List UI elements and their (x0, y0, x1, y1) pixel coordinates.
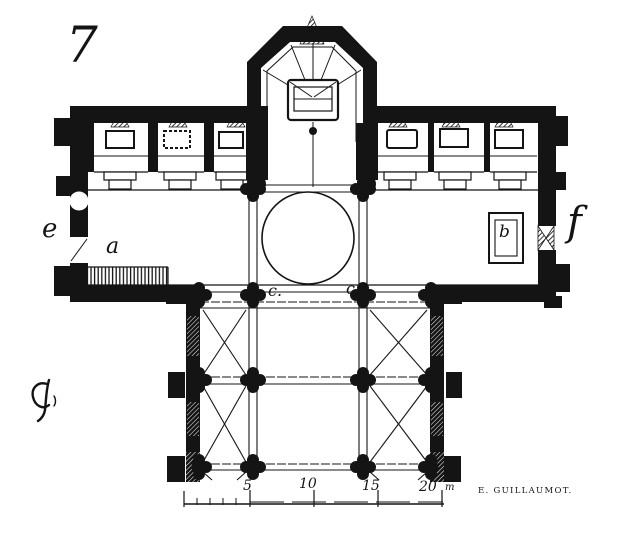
stairs-a (88, 267, 168, 285)
crossing (200, 185, 430, 292)
quatrefoil-piers (192, 176, 439, 480)
chapel-window (164, 131, 190, 148)
scale-tick-15: 15 (362, 479, 380, 493)
east-end-wall (538, 106, 570, 308)
hall-south-walls (70, 285, 554, 302)
aisle-vault-ribs (203, 310, 427, 480)
label-west-feature: e (42, 216, 57, 242)
chapel-window (495, 130, 523, 148)
engraving-church-floor-plan: 7 e a b c. c f 5 10 15 20 m E. GUILLAUMO… (0, 0, 624, 550)
chapel-window (440, 129, 468, 147)
chapel-window (219, 132, 243, 148)
label-monument: b (499, 224, 510, 241)
west-niche (70, 192, 89, 211)
label-east-door: f (567, 202, 582, 242)
floor-plan-drawing (0, 0, 624, 550)
apse-altar (288, 80, 338, 120)
scale-tick-10: 10 (299, 477, 317, 491)
wall-hatch-patches (186, 316, 444, 482)
west-end-wall (54, 106, 89, 302)
apse (246, 16, 378, 193)
nave-bay-lines (200, 295, 430, 480)
scale-tick-5: 5 (243, 479, 252, 493)
label-pier-right: c (346, 281, 355, 297)
scale-bar (184, 490, 444, 507)
engraver-signature: E. GUILLAUMOT. (478, 487, 573, 496)
label-pier-left: c. (268, 283, 282, 299)
engraver-monogram-icon (33, 380, 56, 421)
figure-number: 7 (66, 20, 98, 70)
scale-unit: m (445, 483, 454, 493)
scale-tick-20: 20 (419, 480, 437, 494)
chapel-window (106, 131, 134, 148)
crossing-dome-circle (262, 192, 354, 284)
label-stairs: a (106, 236, 119, 258)
chapel-window (387, 130, 417, 148)
